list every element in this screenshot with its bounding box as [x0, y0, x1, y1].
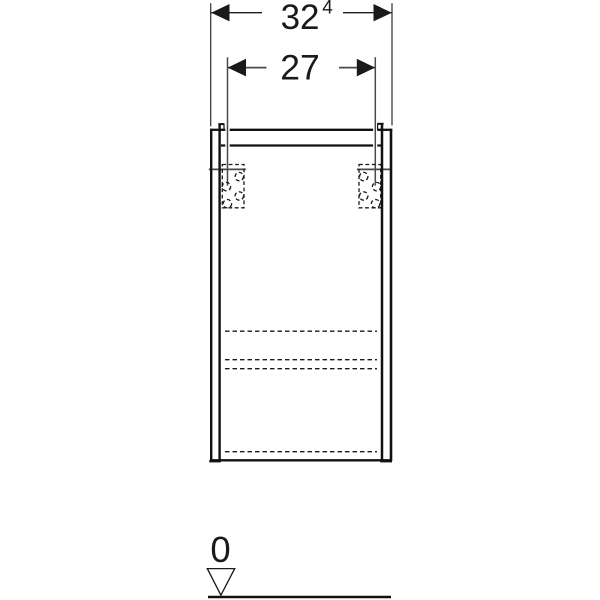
svg-text:0: 0: [210, 529, 230, 570]
svg-text:27: 27: [280, 47, 320, 87]
svg-text:4: 4: [322, 0, 333, 18]
svg-text:32: 32: [281, 0, 320, 37]
